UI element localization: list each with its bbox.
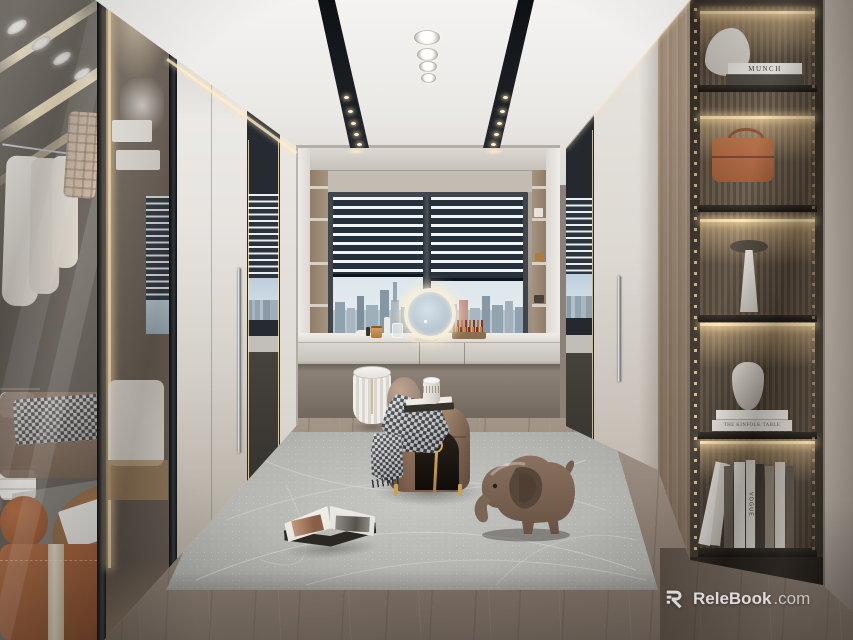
mirror-touch-dot (424, 320, 427, 323)
upper-wall-band (296, 171, 560, 192)
blinds-reflection (248, 194, 279, 278)
cove-glow-right (484, 148, 504, 155)
stool-gold-trim (371, 378, 373, 414)
interior-render-walk-in-closet: MUNCH THE KINFOLK TABLE VOGUE (0, 0, 853, 640)
vanity-mirror (404, 288, 456, 340)
track-bulb (348, 110, 353, 113)
shelf-board (532, 218, 546, 221)
watermark-brand: ReleBook (693, 589, 771, 609)
track-bulb (500, 110, 505, 113)
desk-reflection (248, 336, 279, 352)
drawer-seam (419, 343, 420, 364)
decor-bottle-amber (535, 253, 543, 261)
zebra-blinds-left (333, 197, 423, 277)
track-bulb (491, 143, 496, 146)
open-magazine (272, 496, 388, 566)
watermark-suffix: .com (773, 589, 810, 609)
shelf-board (310, 218, 328, 221)
blinds-reflection (562, 198, 592, 274)
display-cabinet: MUNCH THE KINFOLK TABLE VOGUE (690, 0, 823, 590)
zebra-blinds-right (431, 197, 523, 281)
glass-frame-mullion (169, 0, 177, 640)
ribbed-stool-top (353, 366, 391, 379)
gold-foot (458, 484, 462, 496)
vanity-desk-drawers (296, 343, 560, 364)
decor-box-dark (534, 295, 544, 303)
desk-reflection (562, 335, 592, 353)
shelf-board (310, 304, 328, 307)
city-reflection (562, 296, 592, 318)
door-handle (238, 268, 241, 453)
track-bulb (357, 143, 362, 146)
magazine-photo-left (291, 514, 324, 536)
ceiling-spotlight (421, 73, 436, 83)
glass-tint (0, 0, 98, 640)
track-bulb (497, 122, 502, 125)
track-bulb (354, 133, 359, 136)
cosmetic-bottle-white (384, 317, 390, 336)
column-left (296, 148, 310, 340)
decor-cup-rim (423, 377, 440, 384)
shelf-board (532, 262, 546, 265)
gold-foot (394, 484, 398, 496)
glass-frame-mullion (97, 0, 106, 640)
drawer-seam (464, 343, 465, 364)
shelf-board (310, 186, 328, 189)
shelf-niche-left (310, 170, 328, 336)
elephant-plush-stool (472, 444, 584, 544)
rug-front-shade (166, 570, 660, 592)
shelf-niche-right (532, 170, 546, 336)
city-reflection (248, 300, 279, 320)
led-edge-reflection (248, 140, 250, 500)
outer-wall-right (823, 0, 853, 640)
glass-tint (106, 0, 170, 640)
cove-glow-left (346, 148, 366, 155)
watermark: ReleBook.com (664, 588, 810, 610)
glass-cabinet-left (106, 0, 170, 640)
ceiling-spotlight (414, 30, 440, 45)
shelf-board (310, 262, 328, 265)
glass-partition (0, 0, 98, 640)
cup-band (423, 386, 440, 393)
decor-box-white (534, 208, 543, 217)
lipstick-tray (452, 332, 486, 339)
cosmetic-jar-glass (392, 323, 403, 338)
track-bulb (351, 122, 356, 125)
magazine-photo-right (335, 516, 370, 533)
track-bulb (494, 133, 499, 136)
cabinet-glass-tint (690, 0, 823, 590)
ceiling-spotlight (419, 61, 437, 72)
desk-underside-shadow (296, 364, 560, 372)
bulkhead (296, 148, 560, 171)
door-handle (618, 276, 621, 382)
track-bulb (503, 96, 508, 99)
cosmetic-vial-dark (366, 327, 370, 336)
relebook-logo-icon (664, 588, 686, 610)
cosmetic-jar-amber (371, 326, 382, 338)
shelf-board (532, 304, 546, 307)
elephant-eye (493, 484, 497, 488)
track-bulb (344, 96, 349, 99)
ceiling-spotlight (417, 48, 438, 61)
shelf-board (532, 186, 546, 189)
column-right (546, 148, 560, 340)
